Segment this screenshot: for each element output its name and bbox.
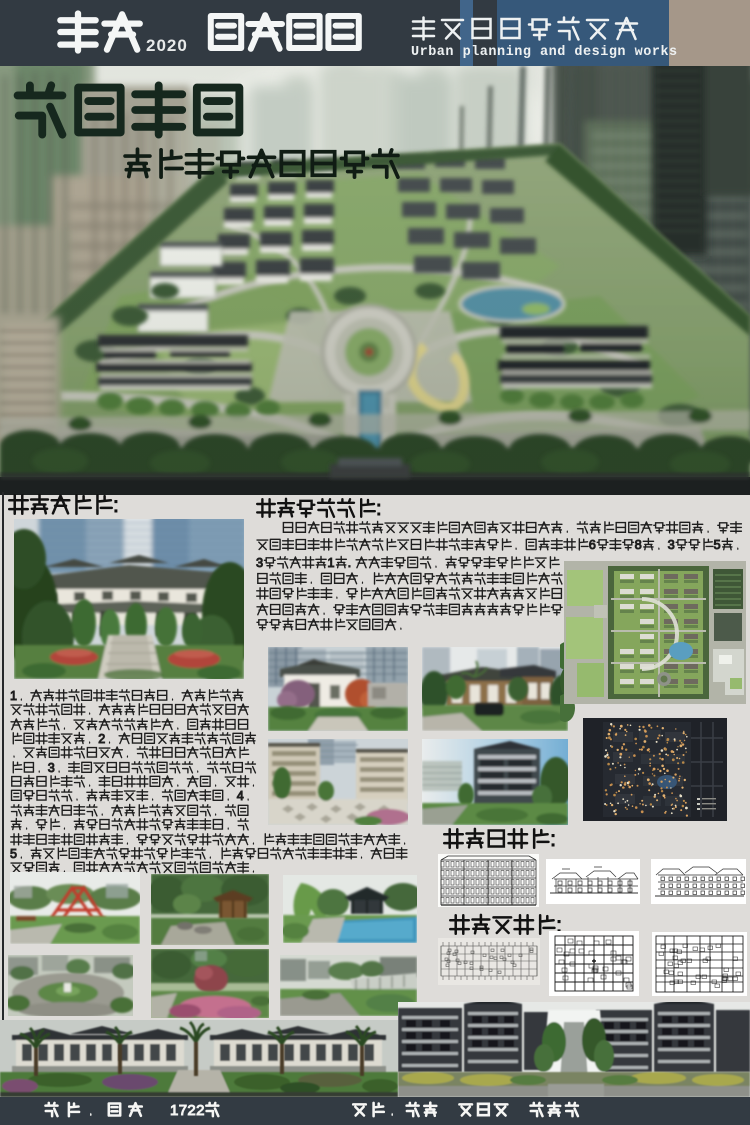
svg-text:5: 5 [10,847,17,861]
svg-text:4: 4 [237,789,244,803]
svg-text:3: 3 [48,761,55,775]
svg-text:3: 3 [668,537,675,552]
svg-text::: : [550,828,556,851]
svg-text::: : [113,494,119,517]
svg-text:1: 1 [170,1102,178,1119]
svg-text:3: 3 [256,555,263,570]
svg-text:2: 2 [196,1102,204,1119]
svg-text::: : [376,498,382,520]
svg-text:.: . [348,555,352,570]
svg-text:2: 2 [187,1102,195,1119]
svg-text:2: 2 [98,732,105,746]
svg-text:5: 5 [714,537,721,552]
svg-text:6: 6 [589,537,596,552]
svg-text:8: 8 [635,537,642,552]
svg-text:1: 1 [327,555,334,570]
svg-text:7: 7 [179,1102,187,1119]
svg-text:1: 1 [10,689,17,703]
